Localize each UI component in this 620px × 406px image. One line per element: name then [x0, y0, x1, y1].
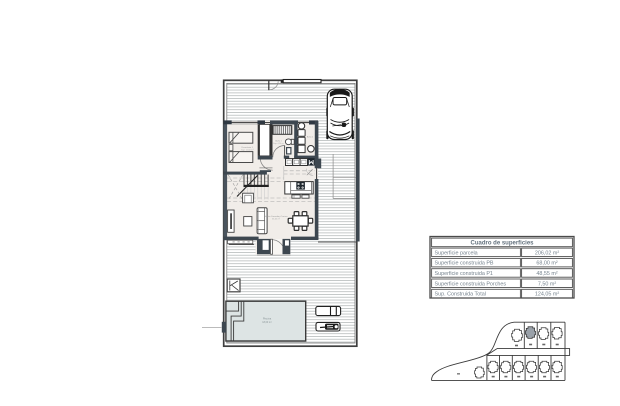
- svg-text:Sup: 4,30 m²: Sup: 4,30 m²: [273, 142, 284, 145]
- svg-text:124,05 m²: 124,05 m²: [535, 292, 559, 298]
- svg-text:36,65 m²: 36,65 m²: [272, 217, 280, 220]
- svg-text:Sup: 11,50 m²: Sup: 11,50 m²: [241, 149, 254, 152]
- svg-text:68,00 m²: 68,00 m²: [536, 261, 557, 267]
- svg-text:48,55 m²: 48,55 m²: [536, 271, 557, 277]
- svg-text:Baño 2: Baño 2: [307, 136, 314, 139]
- svg-text:Superficie parcela: Superficie parcela: [435, 250, 478, 256]
- svg-text:Sup. Construida Total: Sup. Construida Total: [435, 292, 486, 298]
- svg-text:7,50 m²: 7,50 m²: [538, 281, 556, 287]
- svg-text:Cuadro de superficies: Cuadro de superficies: [470, 241, 534, 247]
- svg-text:Superficie construida PB: Superficie construida PB: [435, 261, 494, 267]
- svg-text:Superficie construida Porches: Superficie construida Porches: [435, 281, 507, 287]
- svg-text:18,00 m²: 18,00 m²: [262, 321, 272, 324]
- svg-text:Superficie construida P1: Superficie construida P1: [435, 271, 493, 277]
- svg-text:206,02 m²: 206,02 m²: [535, 250, 559, 256]
